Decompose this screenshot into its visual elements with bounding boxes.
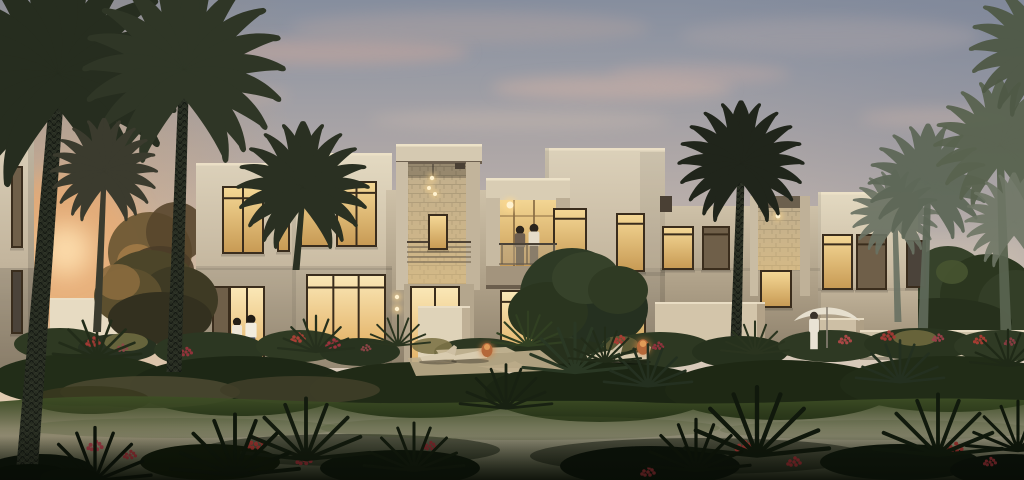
architectural-render xyxy=(0,0,1024,480)
window-sill xyxy=(221,254,265,257)
light-glow xyxy=(427,173,437,183)
cloud xyxy=(680,18,980,54)
person-head xyxy=(233,318,241,326)
window-sill xyxy=(335,247,378,250)
window-pane xyxy=(13,168,21,246)
glowing-planter-pot xyxy=(479,342,495,358)
window-pane xyxy=(762,272,790,306)
tower-pier-right xyxy=(466,162,480,290)
balcony-pier-left xyxy=(486,198,500,268)
shading-overlay xyxy=(818,192,821,338)
window xyxy=(10,270,24,337)
parapet-highlight xyxy=(545,148,665,151)
shrub xyxy=(588,266,648,314)
person-head xyxy=(530,224,539,233)
window-pane xyxy=(430,216,446,248)
window xyxy=(615,213,646,275)
window xyxy=(821,234,854,293)
vignette xyxy=(0,428,1024,480)
window-pane xyxy=(13,272,21,332)
patio-person-layer xyxy=(809,312,819,349)
person-head xyxy=(516,226,524,234)
window xyxy=(427,214,449,253)
light-glow xyxy=(392,304,402,314)
person-torso xyxy=(809,319,819,333)
cloud xyxy=(370,110,670,130)
light-glow xyxy=(431,190,440,199)
light-glow xyxy=(502,197,517,212)
tower-pier-left xyxy=(396,162,408,290)
window xyxy=(701,226,731,273)
window-sill xyxy=(855,290,888,293)
roof-fixture xyxy=(660,196,672,212)
light-glow xyxy=(392,292,402,302)
window-sill xyxy=(427,250,449,253)
person-head xyxy=(246,315,255,324)
window-sill xyxy=(701,270,731,273)
tower-bracket xyxy=(455,163,465,169)
cloud xyxy=(610,64,790,84)
window-sill xyxy=(10,248,24,251)
person-head xyxy=(810,312,818,320)
window xyxy=(661,226,695,273)
person xyxy=(809,312,819,349)
shrub xyxy=(936,260,968,284)
window xyxy=(10,166,24,251)
person-legs xyxy=(810,332,818,349)
window-sill xyxy=(661,270,695,273)
window-sill xyxy=(299,247,332,250)
balcony-header xyxy=(486,180,570,200)
window-sill xyxy=(276,252,291,255)
tower-beam xyxy=(396,146,482,162)
window-sill xyxy=(821,290,854,293)
cloud xyxy=(290,12,650,44)
person-torso xyxy=(245,323,256,338)
